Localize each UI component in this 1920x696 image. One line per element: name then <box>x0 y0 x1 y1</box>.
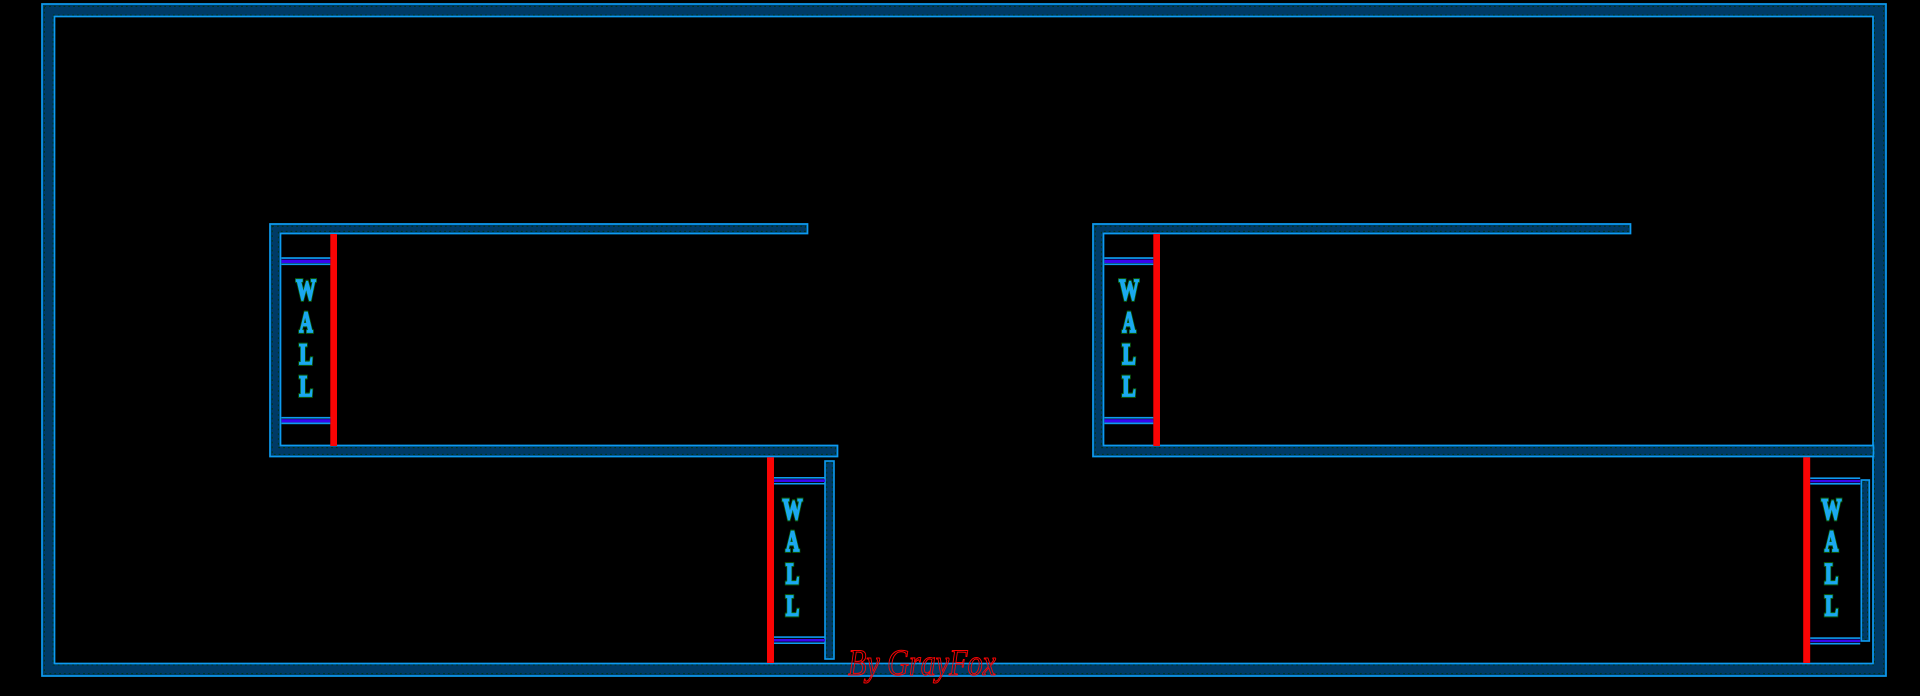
svg-text:L: L <box>786 557 800 590</box>
svg-text:A: A <box>1825 525 1839 558</box>
svg-text:A: A <box>1122 306 1136 339</box>
svg-text:A: A <box>786 525 800 558</box>
svg-text:W: W <box>783 493 803 526</box>
svg-text:L: L <box>1122 338 1136 371</box>
svg-text:By GrayFox: By GrayFox <box>848 643 996 684</box>
svg-text:A: A <box>299 306 313 339</box>
svg-text:W: W <box>1822 493 1842 526</box>
svg-text:L: L <box>1825 557 1839 590</box>
svg-text:L: L <box>1122 370 1136 403</box>
svg-text:L: L <box>299 338 313 371</box>
svg-text:L: L <box>299 370 313 403</box>
svg-text:W: W <box>1119 274 1139 307</box>
svg-text:L: L <box>786 589 800 622</box>
svg-text:L: L <box>1825 589 1839 622</box>
svg-text:W: W <box>296 274 316 307</box>
